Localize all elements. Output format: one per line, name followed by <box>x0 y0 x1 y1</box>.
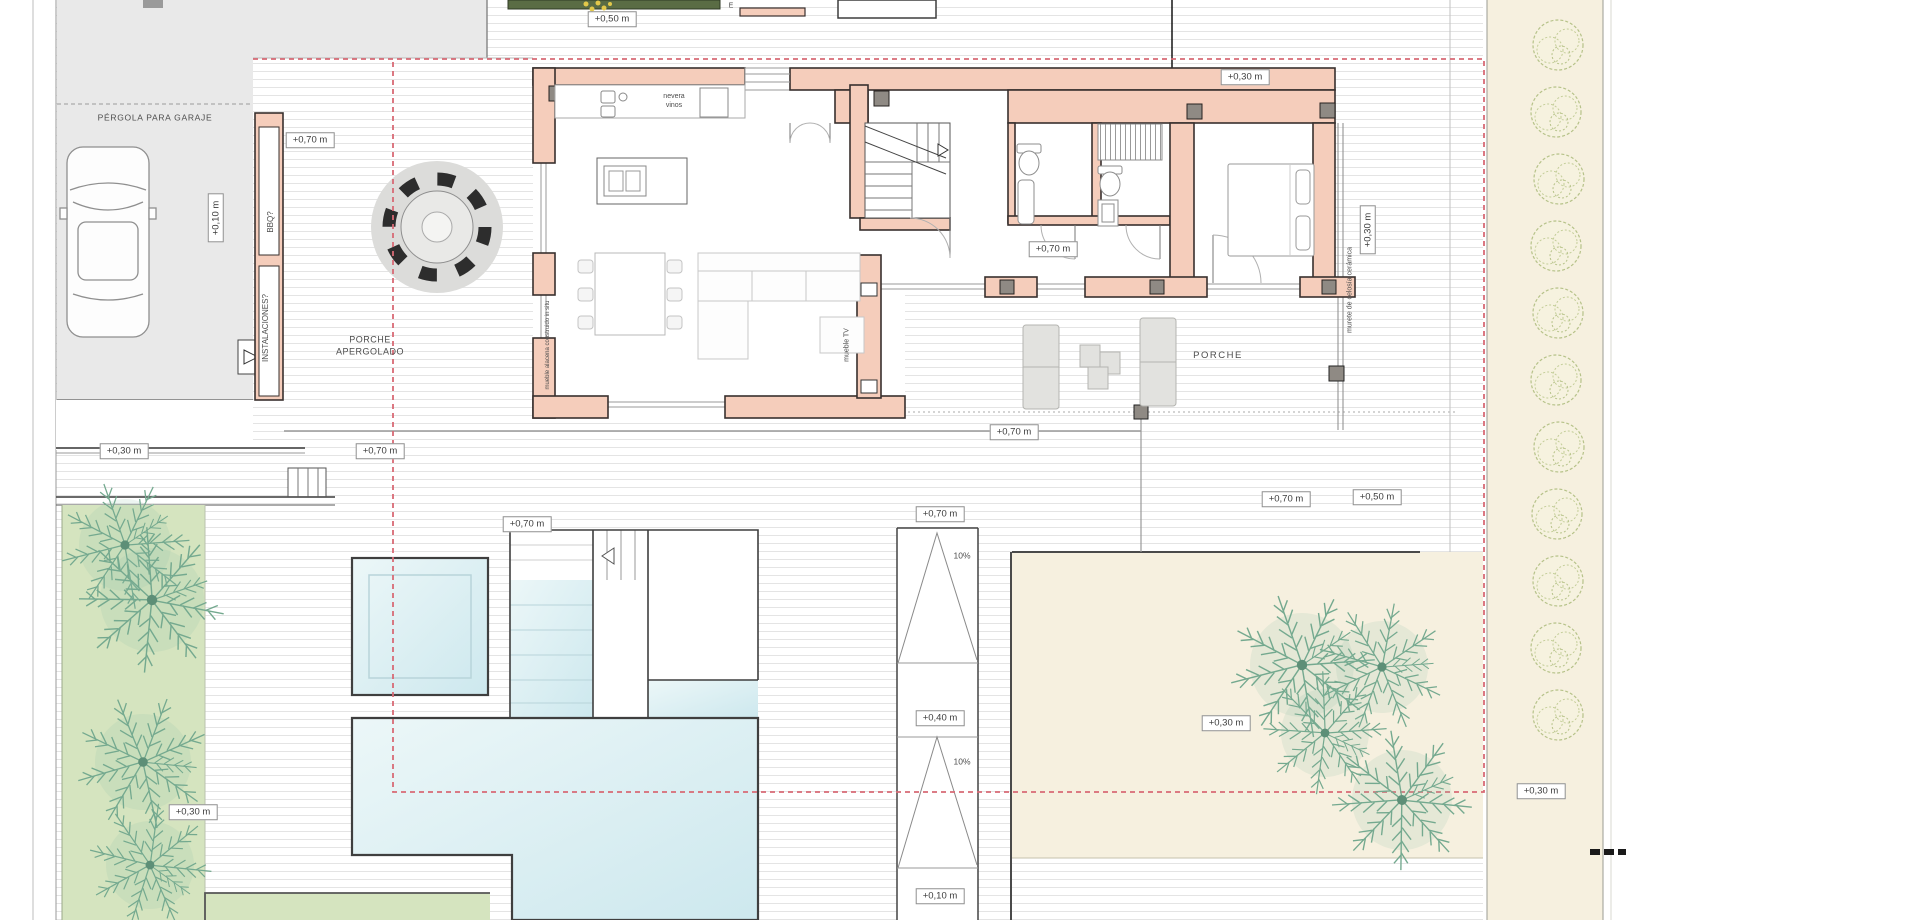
level-label-walkway: +0,30 m <box>100 443 149 459</box>
level-label-lawn-left: +0,30 m <box>169 804 218 820</box>
scale-bar-fragment <box>1590 849 1626 855</box>
island <box>597 158 687 204</box>
closet-hatch <box>1098 124 1162 160</box>
level-label-porch-nw: +0,70 m <box>286 132 335 148</box>
pergola-garage-title: PÉRGOLA PARA GARAJE <box>98 112 213 123</box>
entrance-canopy <box>838 0 936 18</box>
level-label-garden-right: +0,30 m <box>1517 783 1566 799</box>
top-edge-fragment-label: E <box>729 1 734 10</box>
builtin-cabinet-label: mueble alacena construido in situ <box>545 300 553 389</box>
porch-east-title: PORCHE <box>1193 350 1243 362</box>
level-label-north-deck: +0,30 m <box>1221 69 1270 85</box>
wine-fridge-label: nevera vinos <box>663 92 684 110</box>
wine-fridge-line1: nevera <box>663 92 684 101</box>
ramp-slope-lower-label: 10% <box>953 756 970 767</box>
level-label-garage: +0,10 m <box>208 194 224 243</box>
level-label-garden-se: +0,30 m <box>1202 715 1251 731</box>
level-label-ramp-top: +0,70 m <box>916 506 965 522</box>
level-label-deck-mid: +0,70 m <box>503 516 552 532</box>
porch-pergola-line1: PORCHE <box>336 334 404 346</box>
level-label-ramp-mid: +0,40 m <box>916 710 965 726</box>
planter-strip <box>508 0 720 9</box>
level-label-ramp-bottom: +0,10 m <box>916 888 965 904</box>
level-label-top-planter: +0,50 m <box>588 11 637 27</box>
wine-fridge-line2: vinos <box>663 101 684 110</box>
level-label-deck-east-low: +0,50 m <box>1353 489 1402 505</box>
ramp-slope-upper-label: 10% <box>953 550 970 561</box>
window <box>745 68 790 90</box>
staircase <box>865 123 950 218</box>
level-label-porch-south: +0,70 m <box>990 424 1039 440</box>
bed <box>1228 164 1314 256</box>
installations-label: INSTALACIONES? <box>261 294 271 362</box>
level-label-hall: +0,70 m <box>1029 241 1078 257</box>
floor-plan-page: PÉRGOLA PARA GARAJE PORCHE APERGOLADO PO… <box>0 0 1920 920</box>
tv-cabinet-label: mueble TV <box>842 328 851 362</box>
ceramic-lattice-label: murete de celosía cerámica <box>1345 247 1354 333</box>
level-label-east-lattice: +0,30 m <box>1360 206 1376 255</box>
outdoor-round-table <box>371 161 503 293</box>
wine-fridge <box>700 88 728 117</box>
car <box>60 147 156 337</box>
level-label-below-bbq: +0,70 m <box>356 443 405 459</box>
porch-pergola-line2: APERGOLADO <box>336 346 404 358</box>
level-label-deck-east: +0,70 m <box>1262 491 1311 507</box>
porch-pergola-title: PORCHE APERGOLADO <box>336 334 404 357</box>
bbq-label: BBQ? <box>266 211 276 232</box>
